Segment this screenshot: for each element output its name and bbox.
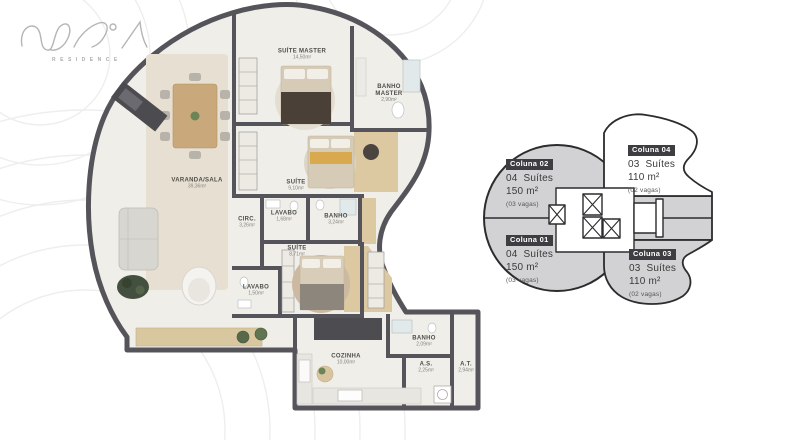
keyplan-parking-coluna-03: (02 vagas) bbox=[629, 291, 676, 298]
keyplan-suites-coluna-01: 04 Suítes bbox=[506, 249, 553, 260]
keyplan-unit-coluna-02: Coluna 02 04 Suítes 150 m² (03 vagas) bbox=[506, 153, 553, 208]
keyplan-parking-coluna-01: (03 vagas) bbox=[506, 277, 553, 284]
brand-logo-subtitle: RESIDENCE bbox=[52, 57, 122, 63]
keyplan-unit-coluna-03: Coluna 03 03 Suítes 110 m² (02 vagas) bbox=[629, 243, 676, 298]
brand-logo-mark bbox=[21, 22, 147, 50]
egg-chair bbox=[182, 267, 216, 305]
bed-suite-3 bbox=[292, 255, 350, 313]
keyplan-parking-coluna-02: (03 vagas) bbox=[506, 201, 553, 208]
keyplan-suites-coluna-03: 03 Suítes bbox=[629, 263, 676, 274]
keyplan-area-coluna-03: 110 m² bbox=[629, 276, 676, 287]
keyplan-badge-coluna-01: Coluna 01 bbox=[506, 235, 553, 246]
bed-master bbox=[275, 66, 335, 130]
sofa bbox=[119, 208, 158, 270]
keyplan-area-coluna-02: 150 m² bbox=[506, 186, 553, 197]
keyplan-unit-coluna-04: Coluna 04 03 Suítes 110 m² (02 vagas) bbox=[628, 139, 675, 194]
keyplan-badge-coluna-03: Coluna 03 bbox=[629, 249, 676, 260]
keyplan-suites-coluna-02: 04 Suítes bbox=[506, 173, 553, 184]
floorplan bbox=[88, 5, 478, 408]
keyplan-badge-coluna-02: Coluna 02 bbox=[506, 159, 553, 170]
large-plant bbox=[117, 275, 149, 299]
marketing-floorplan-page: RESIDENCE VARANDA/SALA 39,36m² SUÍTE MAS… bbox=[0, 0, 800, 440]
scene-svg bbox=[0, 0, 800, 440]
keyplan-area-coluna-01: 150 m² bbox=[506, 262, 553, 273]
keyplan-badge-coluna-04: Coluna 04 bbox=[628, 145, 675, 156]
keyplan-unit-coluna-01: Coluna 01 04 Suítes 150 m² (03 vagas) bbox=[506, 229, 553, 284]
keyplan-area-coluna-04: 110 m² bbox=[628, 172, 675, 183]
keyplan-parking-coluna-04: (02 vagas) bbox=[628, 187, 675, 194]
washer bbox=[434, 386, 451, 403]
keyplan-suites-coluna-04: 03 Suítes bbox=[628, 159, 675, 170]
